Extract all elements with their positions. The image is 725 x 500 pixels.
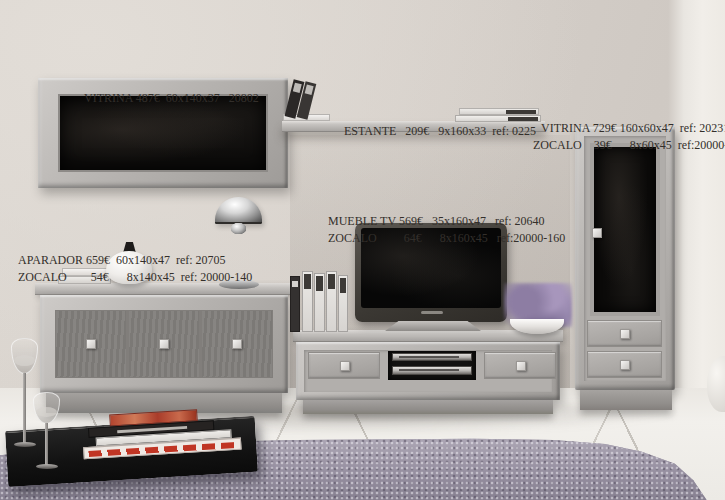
stacked-book — [455, 115, 541, 122]
book-spine — [338, 275, 348, 332]
tall-vitrina-plinth — [580, 390, 672, 410]
tv-stand — [385, 321, 481, 331]
annotation-mueble-tv: MUEBLE TV 569€ 35x160x47 ref: 20640 ZOCA… — [328, 180, 340, 246]
annotation-line: ZOCALO 64€ 8x160x45 ref:20000-160 — [328, 230, 565, 247]
drawer-knob — [516, 361, 526, 371]
book-spine — [302, 271, 313, 332]
standing-books — [290, 269, 348, 332]
vitrina-drawer — [587, 351, 662, 378]
door-knob — [232, 339, 242, 349]
annotation-line: ZOCALO 54€ 8x140x45 ref: 20000-140 — [18, 269, 252, 286]
annotation-tall-vitrina: VITRINA 729€ 160x60x47 ref: 20231 ZOCALO… — [533, 87, 545, 153]
glass-stem — [23, 373, 26, 443]
door-knob — [86, 339, 96, 349]
book-spine — [326, 271, 337, 332]
tv-unit-plinth — [303, 400, 553, 414]
tv-unit-cabinet — [296, 342, 560, 400]
drawer-knob — [340, 361, 350, 371]
aparador-door — [129, 311, 199, 377]
door-knob — [159, 339, 169, 349]
wine-glass-short — [32, 392, 62, 472]
glass-stem — [45, 423, 48, 465]
annotation-estante: ESTANTE 209€ 9x160x33 ref: 0225 — [344, 90, 356, 140]
drawer-knob — [620, 360, 630, 370]
book-spine — [290, 276, 300, 332]
tv-unit-open-shelf — [388, 351, 476, 380]
door-knob — [592, 228, 602, 238]
aparador-front — [55, 310, 273, 378]
glass-liquid — [14, 355, 35, 366]
vitrina-drawer — [587, 320, 662, 347]
dvd-player — [392, 366, 472, 375]
tv-unit-front — [304, 350, 552, 392]
annotation-line: MUEBLE TV 569€ 35x160x47 ref: 20640 — [328, 213, 545, 230]
aparador-cabinet — [40, 295, 288, 393]
book-spine — [314, 273, 325, 332]
annotation-line: ESTANTE 209€ 9x160x33 ref: 0225 — [344, 123, 536, 140]
lamp-ball — [231, 223, 246, 234]
annotation-aparador: APARADOR 659€ 60x140x47 ref: 20705 ZOCAL… — [18, 219, 30, 285]
aparador-door — [202, 311, 272, 377]
tall-vitrina-front — [584, 136, 666, 381]
stacked-book — [459, 108, 539, 115]
aparador-plinth — [46, 393, 282, 413]
glass-liquid — [36, 407, 57, 417]
annotation-wall-vitrina: VITRINA 487€ 60x140x37 20802 — [84, 57, 96, 107]
drawer-knob — [620, 329, 630, 339]
aparador-door — [56, 311, 126, 377]
tv-unit-drawer-right — [484, 352, 556, 379]
furniture-catalog-photo: VITRINA 487€ 60x140x37 20802 ESTANTE 209… — [0, 0, 725, 500]
chrome-lamp-shade — [215, 197, 262, 224]
tv-unit-drawer-left — [308, 352, 380, 379]
glass-foot — [36, 464, 58, 469]
tall-vitrina-cabinet — [575, 127, 675, 390]
annotation-line: VITRINA 729€ 160x60x47 ref: 20231 — [541, 120, 725, 137]
annotation-line: APARADOR 659€ 60x140x47 ref: 20705 — [18, 252, 226, 269]
tv-brand-logo — [421, 311, 443, 314]
dvd-player — [392, 353, 472, 361]
annotation-line: ZOCALO 39€ 8x60x45 ref:20000-60 — [533, 137, 725, 154]
annotation-line: VITRINA 487€ 60x140x37 20802 — [84, 90, 259, 107]
